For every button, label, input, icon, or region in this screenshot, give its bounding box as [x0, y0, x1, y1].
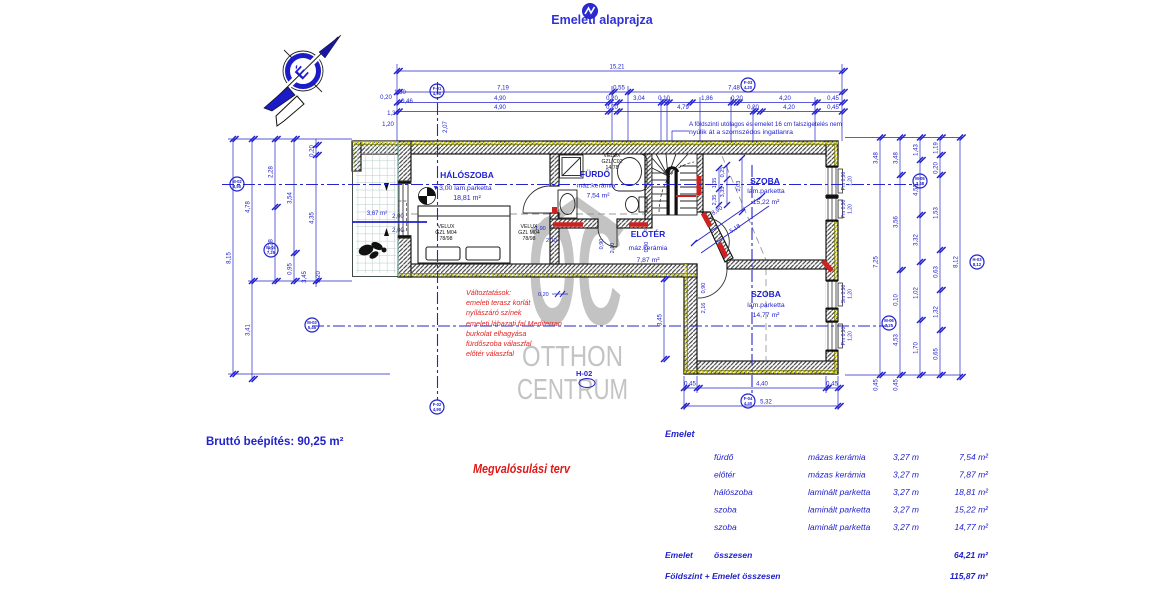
- svg-text:4,79: 4,79: [677, 105, 689, 111]
- svg-text:1,35: 1,35: [712, 178, 718, 189]
- svg-text:0,45: 0,45: [827, 96, 839, 102]
- svg-text:15,22 m²: 15,22 m²: [954, 505, 989, 515]
- svg-text:3,35: 3,35: [720, 187, 726, 198]
- svg-text:4,90: 4,90: [433, 407, 442, 412]
- svg-text:1,20: 1,20: [848, 331, 854, 341]
- svg-text:nyúlik át a szomszédos ingatla: nyúlik át a szomszédos ingatlanra: [689, 130, 794, 136]
- svg-text:7,48: 7,48: [728, 86, 740, 92]
- svg-text:3,04: 3,04: [633, 96, 645, 102]
- svg-text:64,21 m²: 64,21 m²: [954, 550, 989, 560]
- svg-text:7,54 m²: 7,54 m²: [586, 193, 610, 200]
- svg-text:0,46: 0,46: [401, 99, 413, 105]
- svg-text:összesen: összesen: [714, 550, 752, 560]
- svg-text:7,25: 7,25: [885, 323, 894, 328]
- svg-text:4,20: 4,20: [744, 85, 753, 90]
- svg-text:2,00: 2,00: [392, 228, 404, 234]
- svg-text:18,81 m²: 18,81 m²: [453, 195, 481, 202]
- svg-text:3,48: 3,48: [874, 152, 880, 164]
- svg-text:4,20: 4,20: [783, 105, 795, 111]
- svg-text:7,54 m²: 7,54 m²: [959, 452, 989, 462]
- svg-text:▼3,00 lam.parketta: ▼3,00 lam.parketta: [432, 185, 491, 192]
- svg-text:3,67 m²: 3,67 m²: [367, 211, 387, 217]
- svg-text:1,20: 1,20: [848, 176, 854, 186]
- svg-text:14,77 m²: 14,77 m²: [753, 312, 781, 319]
- svg-text:78/98: 78/98: [440, 236, 453, 242]
- svg-text:mázas kerámia: mázas kerámia: [808, 452, 866, 462]
- svg-text:2,10: 2,10: [546, 238, 557, 244]
- svg-text:4,90: 4,90: [494, 96, 506, 102]
- svg-text:szoba: szoba: [714, 505, 737, 515]
- svg-text:HÁLÓSZOBA: HÁLÓSZOBA: [440, 169, 494, 180]
- svg-text:3,27 m: 3,27 m: [893, 522, 919, 532]
- svg-text:8,12: 8,12: [954, 256, 960, 268]
- svg-text:0,20: 0,20: [538, 292, 549, 298]
- svg-text:hálószoba: hálószoba: [714, 487, 753, 497]
- svg-text:5,45: 5,45: [308, 325, 317, 330]
- svg-text:laminált parketta: laminált parketta: [808, 505, 871, 515]
- svg-text:3,27 m: 3,27 m: [893, 470, 919, 480]
- svg-text:8,12: 8,12: [973, 262, 982, 267]
- svg-text:3,27 m: 3,27 m: [893, 505, 919, 515]
- svg-text:2,10: 2,10: [610, 243, 616, 254]
- svg-text:előtér válaszfal: előtér válaszfal: [466, 349, 514, 358]
- svg-text:4,90: 4,90: [494, 105, 506, 111]
- svg-text:0,20: 0,20: [731, 96, 743, 102]
- svg-text:máz.kerámia: máz.kerámia: [577, 183, 616, 190]
- svg-text:3,27 m: 3,27 m: [893, 452, 919, 462]
- svg-text:Földszint + Emelet összesen: Földszint + Emelet összesen: [665, 571, 781, 581]
- svg-text:1,30: 1,30: [394, 90, 406, 96]
- svg-text:8,90: 8,90: [233, 184, 242, 189]
- svg-text:0,10: 0,10: [894, 294, 900, 306]
- svg-text:1,02: 1,02: [914, 287, 920, 299]
- svg-text:1,53: 1,53: [934, 207, 940, 219]
- svg-text:18,81 m²: 18,81 m²: [954, 487, 989, 497]
- svg-text:78/98: 78/98: [523, 236, 536, 242]
- svg-text:4,35: 4,35: [310, 212, 316, 224]
- svg-text:0,90: 0,90: [599, 239, 605, 250]
- svg-text:1,30: 1,30: [387, 111, 399, 117]
- svg-text:0,45: 0,45: [874, 379, 880, 391]
- svg-text:0,20: 0,20: [310, 145, 316, 157]
- svg-text:fürdőszoba válaszfal: fürdőszoba válaszfal: [466, 339, 532, 348]
- svg-text:0,95: 0,95: [288, 263, 294, 275]
- svg-text:OTTHON: OTTHON: [522, 341, 623, 373]
- svg-text:2,07: 2,07: [443, 121, 449, 133]
- svg-text:2,16: 2,16: [701, 303, 707, 314]
- svg-text:4,78: 4,78: [246, 201, 252, 213]
- svg-text:0,20: 0,20: [934, 162, 940, 174]
- svg-text:3,56: 3,56: [894, 216, 900, 228]
- svg-text:1,43: 1,43: [914, 144, 920, 156]
- svg-text:0,20: 0,20: [747, 105, 759, 111]
- svg-text:0,20: 0,20: [380, 95, 392, 101]
- svg-text:7,19: 7,19: [497, 86, 509, 92]
- svg-text:3,48: 3,48: [894, 152, 900, 164]
- svg-text:ELŐTÉR: ELŐTÉR: [631, 228, 665, 239]
- svg-text:A földszinti utólagos és emele: A földszinti utólagos és emelet 16 cm fa…: [689, 122, 842, 128]
- svg-text:0,63: 0,63: [934, 266, 940, 278]
- svg-text:0,90: 0,90: [701, 283, 707, 294]
- svg-text:0,45: 0,45: [827, 105, 839, 111]
- svg-text:8,15: 8,15: [227, 252, 233, 264]
- svg-text:0,20: 0,20: [606, 105, 618, 111]
- svg-text:Emeleti alaprajza: Emeleti alaprajza: [551, 13, 653, 27]
- svg-text:3,27 m: 3,27 m: [893, 487, 919, 497]
- svg-text:7,25: 7,25: [874, 256, 880, 268]
- svg-text:burkolat elhagyása: burkolat elhagyása: [466, 329, 526, 338]
- svg-text:Emelet: Emelet: [665, 550, 694, 560]
- svg-text:1,19: 1,19: [934, 142, 940, 154]
- svg-text:0,45: 0,45: [826, 382, 838, 388]
- svg-text:CENTRUM: CENTRUM: [517, 374, 628, 406]
- svg-text:3,54: 3,54: [288, 192, 294, 204]
- svg-text:lam.parketta: lam.parketta: [747, 188, 785, 195]
- svg-text:emeleti lábazati fal Mediterra: emeleti lábazati fal Mediterran: [466, 319, 562, 328]
- svg-text:3,45: 3,45: [658, 314, 664, 326]
- svg-text:4,53: 4,53: [894, 334, 900, 346]
- svg-text:laminált parketta: laminált parketta: [808, 522, 871, 532]
- svg-text:0,65: 0,65: [934, 348, 940, 360]
- svg-text:nyílászáró színek: nyílászáró színek: [466, 308, 522, 317]
- svg-text:0,45: 0,45: [894, 379, 900, 391]
- svg-text:máz.kerámia: máz.kerámia: [629, 245, 668, 252]
- svg-text:3,48: 3,48: [916, 181, 925, 186]
- svg-text:1,20: 1,20: [848, 204, 854, 214]
- svg-text:1,70: 1,70: [914, 342, 920, 354]
- svg-text:5,18: 5,18: [729, 223, 743, 235]
- svg-text:0,25: 0,25: [720, 167, 726, 178]
- svg-text:2,35: 2,35: [712, 195, 718, 206]
- svg-text:Pm 0,90: Pm 0,90: [841, 326, 847, 345]
- svg-text:7,25: 7,25: [267, 250, 276, 255]
- svg-text:SZOBA: SZOBA: [750, 176, 780, 186]
- svg-text:0,10: 0,10: [658, 96, 670, 102]
- svg-text:5,20: 5,20: [316, 271, 322, 283]
- svg-text:15,21: 15,21: [609, 65, 625, 71]
- svg-text:15,22 m²: 15,22 m²: [753, 199, 781, 206]
- svg-text:3,41: 3,41: [246, 324, 252, 336]
- svg-text:Változtatások:: Változtatások:: [466, 288, 511, 297]
- svg-text:4,40: 4,40: [744, 401, 753, 406]
- svg-text:H-02: H-02: [576, 369, 592, 378]
- svg-text:Sm 0,90: Sm 0,90: [841, 284, 847, 303]
- svg-text:14/78: 14/78: [606, 165, 619, 171]
- svg-text:1,20: 1,20: [848, 289, 854, 299]
- svg-text:laminált parketta: laminált parketta: [808, 487, 871, 497]
- svg-text:1,86: 1,86: [701, 96, 713, 102]
- svg-text:3,32: 3,32: [914, 234, 920, 246]
- svg-text:115,87 m²: 115,87 m²: [950, 571, 989, 581]
- svg-text:szoba: szoba: [714, 522, 737, 532]
- svg-text:4,20: 4,20: [779, 96, 791, 102]
- svg-text:14,77 m²: 14,77 m²: [954, 522, 989, 532]
- svg-text:Megvalósulási terv: Megvalósulási terv: [473, 461, 571, 476]
- svg-text:0,45: 0,45: [684, 382, 696, 388]
- svg-text:4,90: 4,90: [433, 91, 442, 96]
- svg-text:előtér: előtér: [714, 470, 736, 480]
- svg-text:2,28: 2,28: [269, 166, 275, 178]
- svg-text:7,87 m²: 7,87 m²: [959, 470, 989, 480]
- svg-text:mázas kerámia: mázas kerámia: [808, 470, 866, 480]
- svg-text:2,03: 2,03: [736, 181, 742, 192]
- svg-text:lam.parketta: lam.parketta: [747, 302, 785, 309]
- svg-text:7,87 m²: 7,87 m²: [636, 257, 660, 264]
- svg-text:emeleti terasz korlát: emeleti terasz korlát: [466, 298, 531, 307]
- svg-text:0,55: 0,55: [613, 86, 625, 92]
- svg-text:Pm 0,90: Pm 0,90: [841, 199, 847, 218]
- svg-text:Pm 0,90: Pm 0,90: [841, 171, 847, 190]
- svg-text:Bruttó beépítés: 90,25 m²: Bruttó beépítés: 90,25 m²: [206, 436, 344, 448]
- svg-text:1,32: 1,32: [934, 306, 940, 318]
- svg-text:1,20: 1,20: [382, 122, 394, 128]
- svg-text:SZOBA: SZOBA: [751, 289, 781, 299]
- svg-text:0,20: 0,20: [606, 96, 618, 102]
- svg-text:3,45: 3,45: [302, 271, 308, 283]
- svg-text:5,32: 5,32: [760, 400, 772, 406]
- svg-text:fürdő: fürdő: [714, 452, 734, 462]
- svg-text:Emelet: Emelet: [665, 429, 696, 439]
- svg-text:4,40: 4,40: [756, 382, 768, 388]
- svg-text:2,00: 2,00: [392, 214, 404, 220]
